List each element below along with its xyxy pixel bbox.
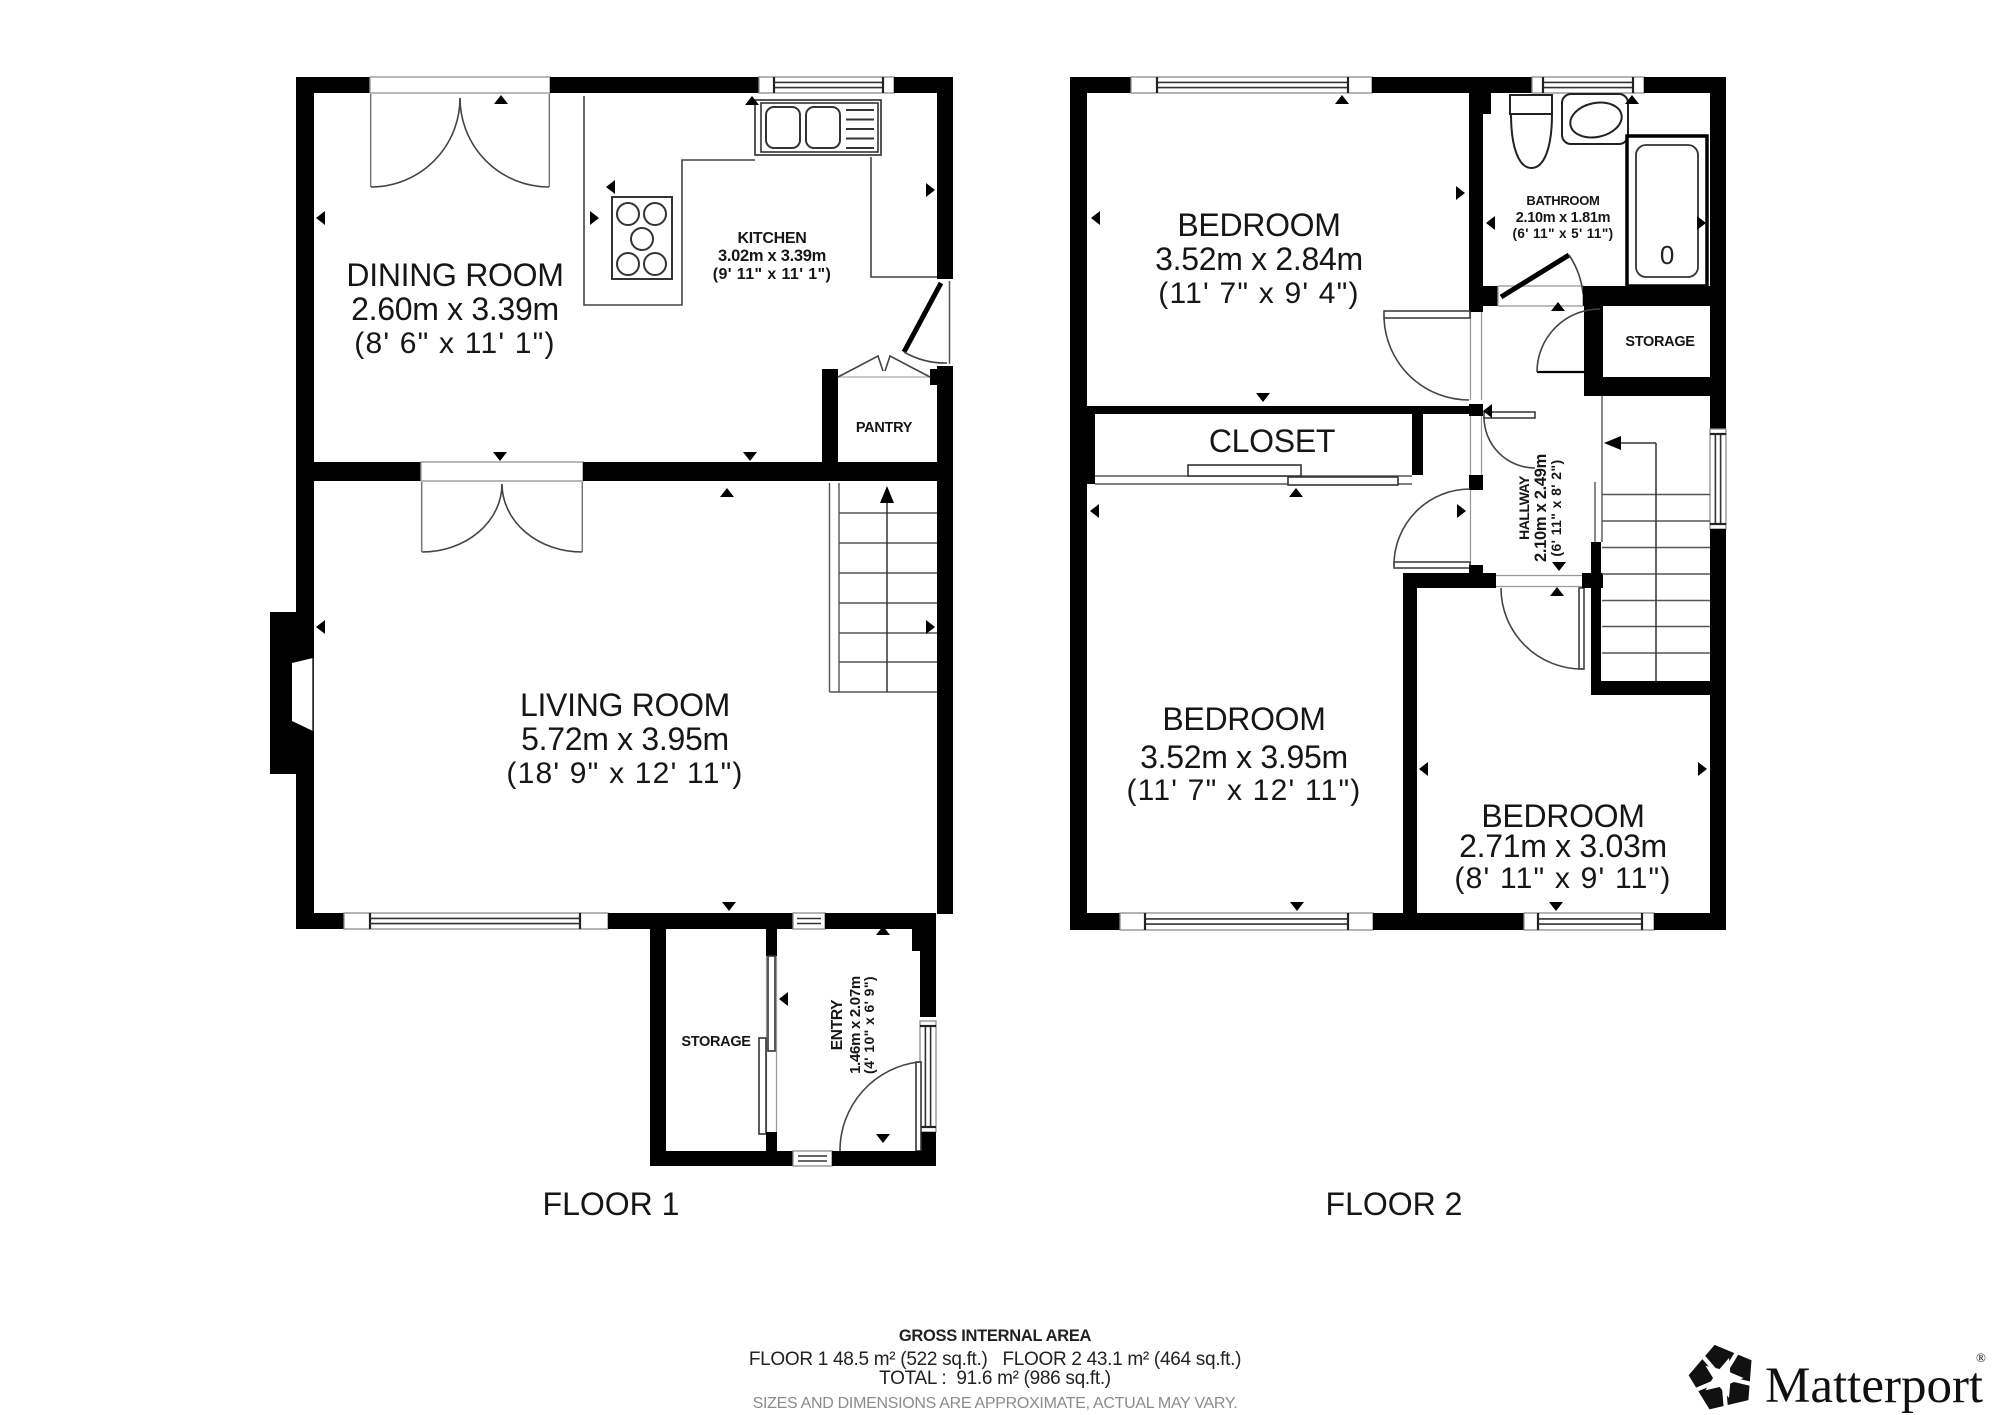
svg-text:STORAGE: STORAGE (1625, 334, 1695, 350)
svg-text:2.10m x 1.81m: 2.10m x 1.81m (1516, 210, 1610, 226)
svg-text:TOTAL : 91.6 m² (986 sq.ft.): TOTAL : 91.6 m² (986 sq.ft.) (879, 1368, 1111, 1389)
svg-text:PANTRY: PANTRY (856, 420, 913, 436)
svg-text:FLOOR 1: FLOOR 1 (543, 1186, 680, 1222)
svg-text:3.02m x 3.39m: 3.02m x 3.39m (718, 247, 826, 265)
svg-text:(8' 6" x 11' 1"): (8' 6" x 11' 1") (354, 327, 555, 360)
svg-text:GROSS INTERNAL AREA: GROSS INTERNAL AREA (899, 1327, 1092, 1345)
svg-text:3.52m x 3.95m: 3.52m x 3.95m (1140, 739, 1348, 775)
svg-text:FLOOR 1 48.5 m² (522 sq.ft.): FLOOR 1 48.5 m² (522 sq.ft.) FLOOR 2 43.… (749, 1349, 1241, 1370)
svg-text:5.72m x 3.95m: 5.72m x 3.95m (521, 721, 729, 757)
svg-text:BATHROOM: BATHROOM (1526, 193, 1599, 208)
svg-text:FLOOR 2: FLOOR 2 (1326, 1186, 1463, 1222)
svg-text:2.71m x 3.03m: 2.71m x 3.03m (1459, 828, 1667, 864)
svg-text:(6' 11" x 8' 2"): (6' 11" x 8' 2") (1548, 459, 1564, 556)
svg-text:HALLWAY: HALLWAY (1516, 475, 1532, 540)
svg-text:(6' 11" x 5' 11"): (6' 11" x 5' 11") (1512, 226, 1613, 241)
svg-text:DINING ROOM: DINING ROOM (346, 257, 563, 293)
svg-text:(8' 11" x 9' 11"): (8' 11" x 9' 11") (1454, 862, 1671, 895)
svg-text:®: ® (1976, 1350, 1986, 1365)
svg-text:ENTRY: ENTRY (829, 999, 846, 1050)
svg-text:BEDROOM: BEDROOM (1162, 701, 1325, 737)
svg-text:(11' 7" x 9' 4"): (11' 7" x 9' 4") (1158, 277, 1359, 310)
svg-text:(9' 11" x 11' 1"): (9' 11" x 11' 1") (713, 266, 832, 283)
svg-text:KITCHEN: KITCHEN (737, 230, 806, 247)
svg-text:2.60m x 3.39m: 2.60m x 3.39m (351, 291, 559, 327)
svg-text:STORAGE: STORAGE (681, 1034, 751, 1050)
svg-text:Matterport: Matterport (1765, 1358, 1983, 1414)
svg-text:(11' 7" x 12' 11"): (11' 7" x 12' 11") (1126, 774, 1361, 807)
svg-text:0: 0 (1660, 240, 1674, 270)
svg-text:BEDROOM: BEDROOM (1177, 207, 1340, 243)
svg-text:SIZES AND DIMENSIONS ARE APPRO: SIZES AND DIMENSIONS ARE APPROXIMATE, AC… (753, 1395, 1238, 1412)
svg-text:LIVING ROOM: LIVING ROOM (520, 687, 730, 723)
svg-text:3.52m x 2.84m: 3.52m x 2.84m (1155, 241, 1363, 277)
svg-text:CLOSET: CLOSET (1209, 423, 1335, 459)
svg-text:(4' 10" x 6' 9"): (4' 10" x 6' 9") (861, 976, 877, 1074)
svg-text:(18' 9" x 12' 11"): (18' 9" x 12' 11") (506, 757, 743, 790)
